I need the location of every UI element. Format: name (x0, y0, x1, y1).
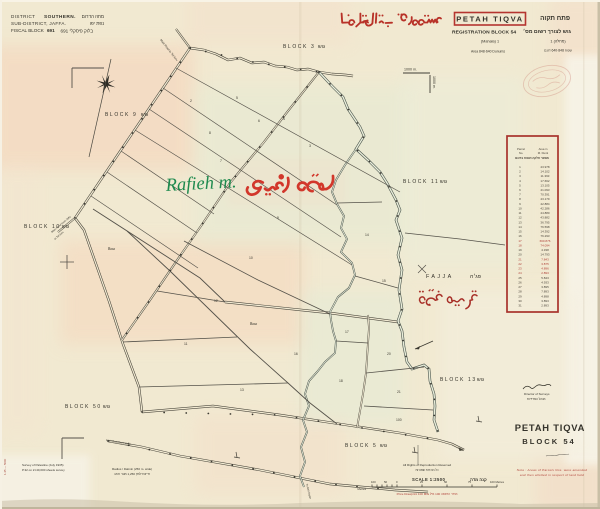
svg-text:15: 15 (382, 279, 386, 283)
svg-text:פג׳ה: פג׳ה (470, 273, 481, 280)
svg-text:44.880: 44.880 (540, 211, 550, 215)
svg-text:3.875: 3.875 (541, 262, 549, 266)
svg-text:כל הזכויות שמורות: כל הזכויות שמורות (415, 468, 438, 472)
svg-text:70.391: 70.391 (540, 193, 550, 197)
svg-text:DISTRICT: DISTRICT (11, 14, 35, 19)
svg-text:14.392: 14.392 (540, 230, 550, 234)
svg-text:4.896: 4.896 (541, 267, 549, 271)
svg-text:פתח תקוה: פתח תקוה (540, 15, 570, 22)
svg-text:3: 3 (309, 144, 311, 148)
svg-text:1000 m.: 1000 m. (404, 68, 417, 72)
svg-text:12: 12 (214, 299, 218, 303)
svg-text:43.179: 43.179 (540, 197, 550, 201)
svg-text:31: 31 (518, 304, 522, 308)
svg-text:FAJJA: FAJJA (426, 274, 454, 280)
svg-text:41.093: 41.093 (540, 188, 550, 192)
svg-text:18: 18 (518, 243, 522, 247)
svg-text:24: 24 (518, 271, 522, 275)
svg-text:BLOCK 54: BLOCK 54 (522, 437, 576, 446)
svg-text:25: 25 (518, 276, 522, 280)
svg-text:43.882: 43.882 (540, 216, 550, 220)
svg-text:100: 100 (371, 480, 376, 484)
svg-text:50: 50 (444, 480, 448, 484)
svg-text:6: 6 (258, 119, 260, 123)
svg-text:22: 22 (518, 262, 522, 266)
svg-text:15: 15 (518, 230, 522, 234)
svg-text:13: 13 (240, 388, 244, 392)
svg-text:5.843: 5.843 (541, 276, 549, 280)
svg-text:SOUTHERN.: SOUTHERN. (44, 14, 76, 20)
svg-text:BLOCK 5: BLOCK 5 (345, 443, 377, 449)
svg-text:SUB-DISTRICT, JAFFA.: SUB-DISTRICT, JAFFA. (11, 21, 66, 26)
svg-text:גוש: גוש (477, 377, 484, 383)
svg-text:2.893: 2.893 (541, 271, 549, 275)
svg-text:נפת יפו: נפת יפו (90, 21, 104, 26)
svg-text:10: 10 (249, 256, 253, 260)
svg-text:מנהל המדידות: מנהל המדידות (527, 397, 545, 401)
svg-text:שטח 848·640 דונם: שטח 848·640 דונם (544, 49, 572, 53)
svg-text:BLOCK 13: BLOCK 13 (440, 377, 477, 383)
svg-text:20: 20 (518, 253, 522, 257)
svg-text:3.895: 3.895 (541, 285, 549, 289)
svg-text:75: 75 (468, 480, 472, 484)
svg-text:13.105: 13.105 (540, 183, 550, 187)
svg-text:Area 848·640 Dunums: Area 848·640 Dunums (471, 50, 505, 54)
svg-text:18: 18 (339, 379, 343, 383)
svg-text:100: 100 (396, 418, 402, 422)
svg-text:74.094: 74.094 (540, 243, 550, 247)
svg-text:PETAH TIQVA: PETAH TIQVA (456, 15, 524, 24)
svg-text:PETAH TIQVA: PETAH TIQVA (515, 422, 585, 433)
svg-text:14: 14 (365, 233, 369, 237)
svg-text:(Mahala) 1: (Mahala) 1 (481, 40, 499, 44)
svg-text:SCALE 1:2500: SCALE 1:2500 (412, 477, 445, 482)
svg-text:גוש לצורך רשום מס׳: גוש לצורך רשום מס׳ (523, 28, 572, 35)
svg-text:and then allotted in respect o: and then allotted in respect of land hel… (520, 473, 584, 477)
svg-text:מחוז הדרום: מחוז הדרום (82, 14, 104, 19)
svg-text:17: 17 (345, 330, 349, 334)
svg-text:12: 12 (518, 216, 522, 220)
svg-text:9: 9 (277, 216, 279, 220)
svg-text:4.338: 4.338 (541, 248, 549, 252)
svg-text:1-35 — 5000: 1-35 — 5000 (3, 458, 7, 475)
svg-text:26: 26 (518, 280, 522, 284)
svg-text:Rafieh m.: Rafieh m. (164, 172, 237, 196)
svg-text:קנה מדה: קנה מדה (470, 477, 487, 482)
svg-text:רדיוס דלמין 1,250 מטר רוחב: רדיוס דלמין 1,250 מטר רוחב (114, 472, 151, 476)
svg-text:19: 19 (518, 248, 522, 252)
svg-text:17: 17 (518, 239, 522, 243)
svg-text:16: 16 (518, 234, 522, 238)
svg-text:4: 4 (283, 117, 285, 121)
svg-text:5: 5 (236, 96, 238, 100)
svg-text:3.893: 3.893 (541, 299, 549, 303)
svg-text:42.884: 42.884 (540, 202, 550, 206)
svg-text:8: 8 (209, 131, 211, 135)
svg-text:גוש: גוש (440, 179, 447, 185)
svg-text:גוש: גוש (141, 112, 148, 118)
svg-text:21: 21 (518, 257, 522, 261)
svg-text:36.795: 36.795 (540, 220, 550, 224)
svg-text:25: 25 (420, 480, 424, 484)
svg-text:20: 20 (387, 352, 391, 356)
svg-text:691: 691 (47, 28, 55, 33)
svg-text:4.933: 4.933 (541, 280, 549, 284)
svg-text:Basa: Basa (250, 322, 257, 326)
svg-text:FISCAL BLOCK: FISCAL BLOCK (11, 28, 45, 33)
svg-text:7: 7 (220, 159, 222, 163)
svg-text:P.32 on 2×40,000 sheets survey: P.32 on 2×40,000 sheets survey (22, 468, 65, 472)
svg-text:4.898: 4.898 (541, 294, 549, 298)
svg-text:Basa: Basa (108, 247, 115, 251)
svg-text:Survey of Palestine (July 1935: Survey of Palestine (July 1935) (22, 463, 64, 467)
svg-text:14.793: 14.793 (540, 253, 550, 257)
svg-text:גוש: גוש (103, 404, 110, 410)
svg-text:23: 23 (518, 267, 522, 271)
svg-text:BLOCK 11: BLOCK 11 (403, 179, 439, 185)
svg-text:1 (מחלה): 1 (מחלה) (550, 40, 566, 44)
svg-text:42.286: 42.286 (540, 207, 550, 211)
svg-text:מספר חלקה ושטח בדונם: מספר חלקה ושטח בדונם (515, 156, 549, 160)
svg-text:BLOCK 3: BLOCK 3 (283, 44, 315, 50)
svg-text:Radius / Dalmin (250 m. wide): Radius / Dalmin (250 m. wide) (112, 467, 152, 471)
svg-text:Price Drawprint 100 Mils מחי: Price Drawprint 100 Mils מחיר הדפסה 100 … (397, 492, 458, 496)
svg-text:BLOCK 50: BLOCK 50 (65, 404, 102, 410)
svg-text:גוש: גוש (380, 443, 387, 449)
svg-text:14.102: 14.102 (540, 170, 550, 174)
svg-text:בלוק פיסקלי 691: בלוק פיסקלי 691 (61, 29, 94, 34)
svg-text:7.843: 7.843 (541, 257, 549, 261)
svg-text:660.876: 660.876 (540, 239, 551, 243)
svg-text:30: 30 (518, 299, 522, 303)
svg-text:M. Dunk: M. Dunk (538, 151, 549, 155)
svg-text:27: 27 (518, 285, 522, 289)
svg-text:16: 16 (294, 352, 298, 356)
svg-text:29: 29 (518, 294, 522, 298)
svg-text:7.893: 7.893 (541, 290, 549, 294)
svg-text:2: 2 (190, 99, 192, 103)
svg-text:21: 21 (397, 390, 401, 394)
svg-text:Director of Surveys: Director of Surveys (524, 392, 550, 396)
svg-text:BLOCK 9: BLOCK 9 (105, 112, 137, 118)
svg-text:2.893: 2.893 (541, 304, 549, 308)
svg-text:11: 11 (518, 211, 521, 215)
svg-text:All Rights of Reproduction Res: All Rights of Reproduction Reserved (403, 463, 452, 467)
svg-text:28: 28 (518, 290, 522, 294)
svg-text:11: 11 (184, 342, 188, 346)
svg-text:11.393: 11.393 (541, 174, 550, 178)
svg-text:14: 14 (518, 225, 522, 229)
svg-text:Note : Areas of Parcels Nos. w: Note : Areas of Parcels Nos. were amende… (517, 468, 588, 472)
svg-text:43.978: 43.978 (540, 165, 550, 169)
svg-text:76.598: 76.598 (540, 225, 550, 229)
svg-text:גוש: גוש (318, 44, 325, 50)
svg-text:17.662: 17.662 (540, 179, 550, 183)
svg-text:REGISTRATION BLOCK 54: REGISTRATION BLOCK 54 (452, 30, 516, 36)
svg-text:10: 10 (518, 207, 522, 211)
svg-text:50: 50 (384, 480, 388, 484)
svg-text:1000 m.: 1000 m. (432, 76, 436, 89)
svg-text:No.: No. (519, 151, 524, 155)
svg-text:76.293: 76.293 (540, 234, 550, 238)
svg-text:Metres: Metres (357, 487, 366, 491)
svg-text:100 Metres: 100 Metres (490, 480, 505, 484)
svg-text:13: 13 (518, 220, 522, 224)
